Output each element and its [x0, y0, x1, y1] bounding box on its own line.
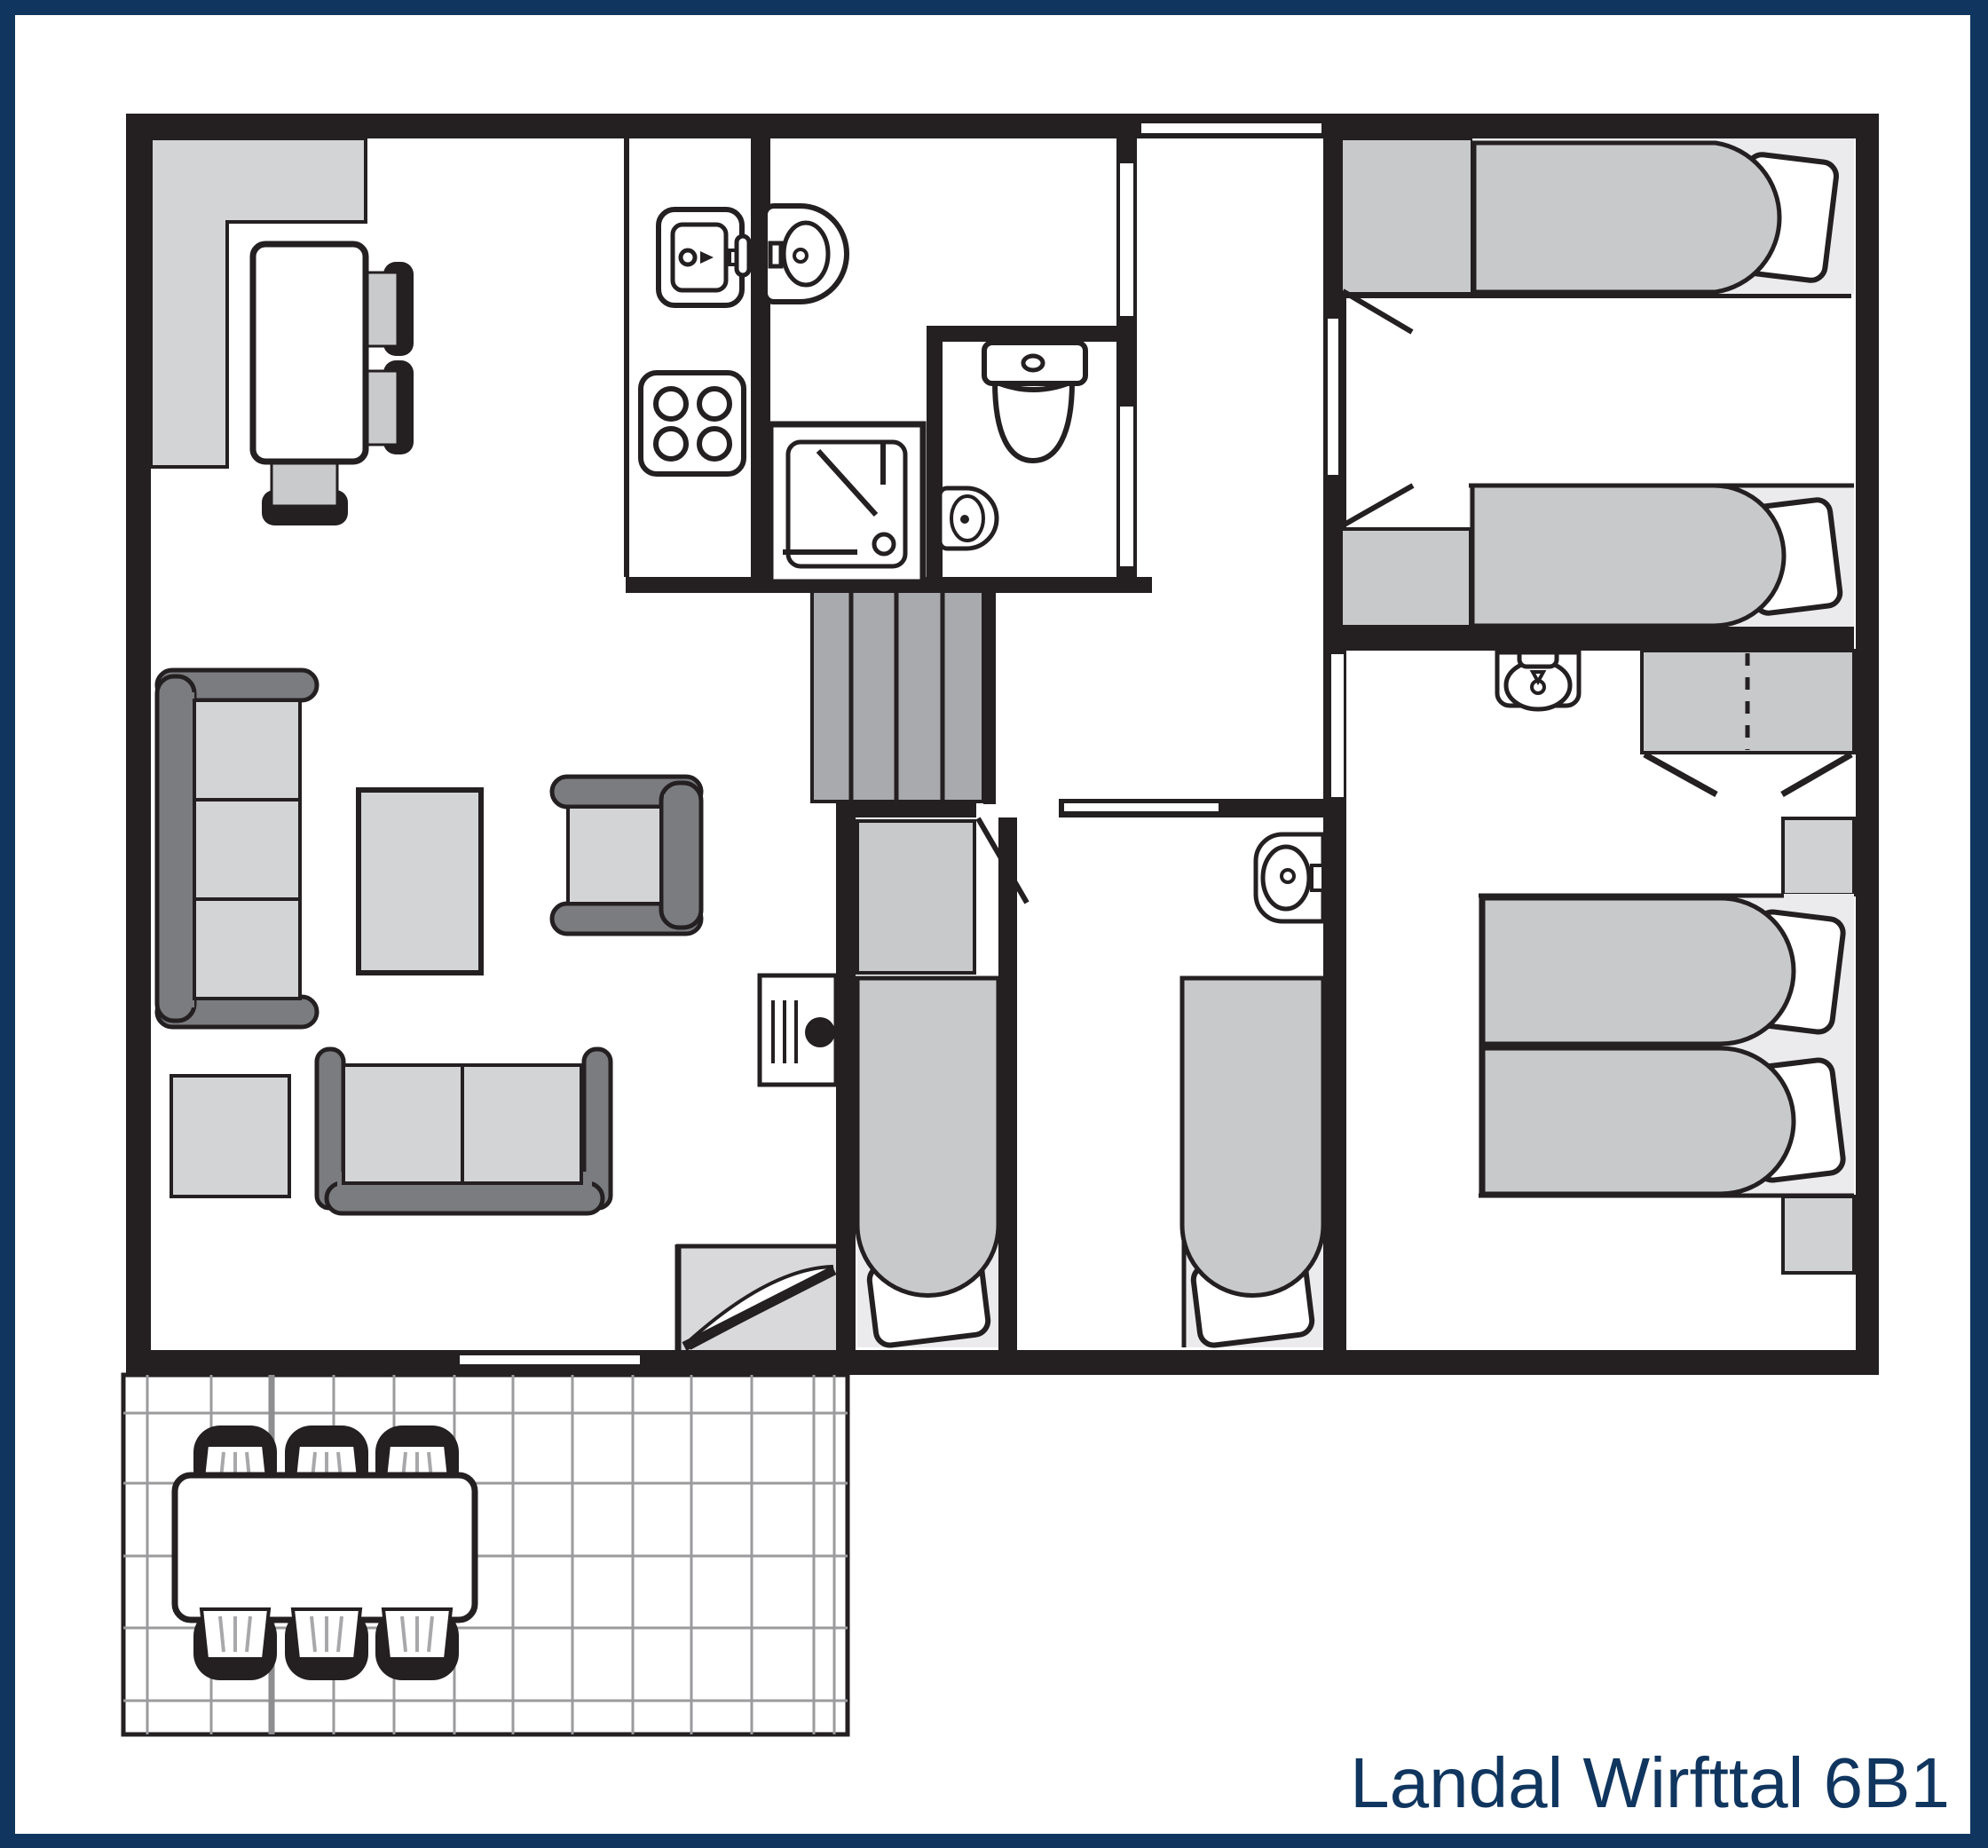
svg-text:Landal Wirfttal 6B1: Landal Wirfttal 6B1: [1350, 1743, 1950, 1822]
